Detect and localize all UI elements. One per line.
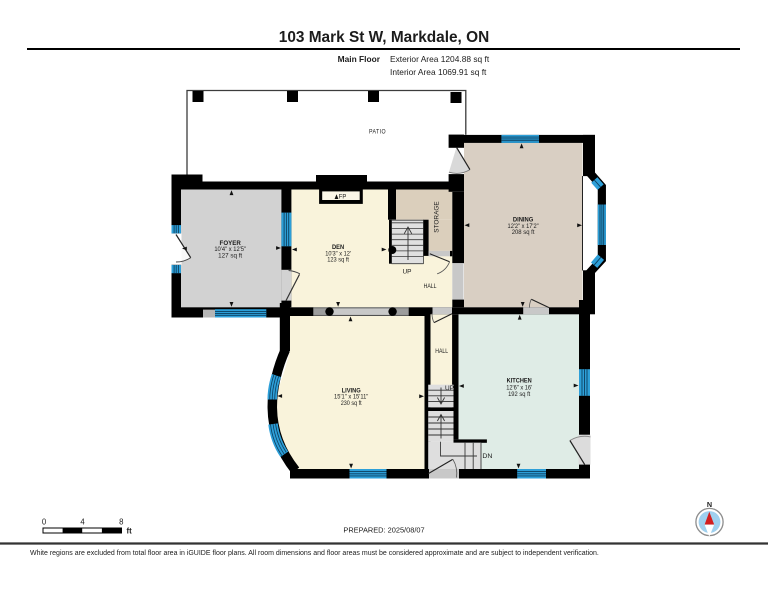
svg-text:PATIO: PATIO — [369, 128, 386, 135]
svg-text:HALL: HALL — [435, 348, 448, 355]
svg-text:0: 0 — [42, 518, 47, 527]
svg-text:DN: DN — [482, 453, 492, 460]
svg-text:STORAGE: STORAGE — [434, 201, 441, 232]
svg-text:UP: UP — [445, 385, 454, 392]
svg-text:UP: UP — [403, 269, 412, 276]
svg-text:FP: FP — [339, 193, 347, 200]
svg-text:230 sq ft: 230 sq ft — [341, 400, 362, 407]
svg-text:Exterior Area 1204.88 sq ft: Exterior Area 1204.88 sq ft — [390, 54, 490, 64]
svg-text:N: N — [707, 500, 712, 509]
svg-text:Main Floor: Main Floor — [338, 54, 381, 64]
svg-text:PREPARED: 2025/08/07: PREPARED: 2025/08/07 — [343, 526, 424, 535]
svg-text:4: 4 — [80, 518, 85, 527]
svg-text:HALL: HALL — [424, 283, 437, 290]
svg-text:123 sq ft: 123 sq ft — [327, 256, 349, 263]
svg-text:8: 8 — [119, 518, 123, 527]
svg-text:ft: ft — [127, 527, 133, 536]
svg-text:103 Mark St W, Markdale, ON: 103 Mark St W, Markdale, ON — [279, 29, 489, 46]
svg-text:Interior Area 1069.91 sq ft: Interior Area 1069.91 sq ft — [390, 67, 487, 77]
svg-text:White regions are excluded fro: White regions are excluded from total fl… — [30, 550, 599, 557]
svg-text:208 sq ft: 208 sq ft — [512, 229, 535, 236]
svg-text:192 sq ft: 192 sq ft — [508, 391, 530, 398]
svg-text:127 sq ft: 127 sq ft — [218, 253, 242, 260]
